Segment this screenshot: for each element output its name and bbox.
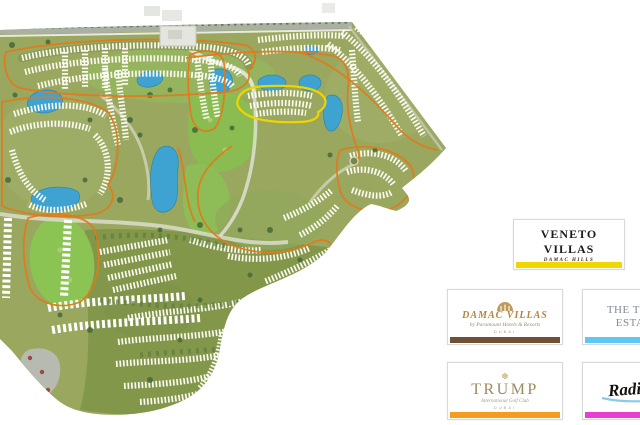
masterplan-map — [0, 0, 460, 425]
legend-card-trump-estates[interactable]: THE TRUMP ESTATES — [582, 289, 640, 345]
offsite-buildings — [144, 3, 335, 21]
trump-subtitle: International Golf Club — [481, 399, 529, 404]
damac-footnote: DUBAI — [494, 329, 516, 334]
radisson-color-bar — [585, 412, 640, 418]
legend-card-radisson[interactable]: Radisson — [582, 362, 640, 420]
legend-card-trump-golf[interactable]: ❆ TRUMP International Golf Club DUBAI — [447, 362, 563, 420]
trump-estates-title-line2: ESTATES — [616, 317, 640, 330]
damac-title: DAMAC VILLAS — [462, 311, 548, 321]
damac-subtitle: by Paramount Hotels & Resorts — [470, 322, 541, 328]
masterplan-map-svg — [0, 0, 460, 425]
damac-color-bar — [450, 337, 560, 343]
radisson-title: Radisson — [607, 377, 640, 398]
trump-estates-title-line1: THE TRUMP — [607, 304, 640, 317]
trump-title: TRUMP — [471, 382, 539, 398]
trump-crest-icon: ❆ — [502, 373, 509, 381]
legend-card-damac-villas[interactable]: DAMAC VILLAS by Paramount Hotels & Resor… — [447, 289, 563, 345]
screen: VENETO VILLAS DAMAC HILLS DAMAC VILLAS b… — [0, 0, 640, 425]
trump-footnote: DUBAI — [494, 405, 516, 410]
trump-color-bar — [450, 412, 560, 418]
veneto-title: VENETO VILLAS — [514, 227, 624, 257]
veneto-color-bar — [516, 262, 622, 268]
trump-estates-color-bar — [585, 337, 640, 343]
legend-card-veneto-villas[interactable]: VENETO VILLAS DAMAC HILLS — [513, 219, 625, 270]
